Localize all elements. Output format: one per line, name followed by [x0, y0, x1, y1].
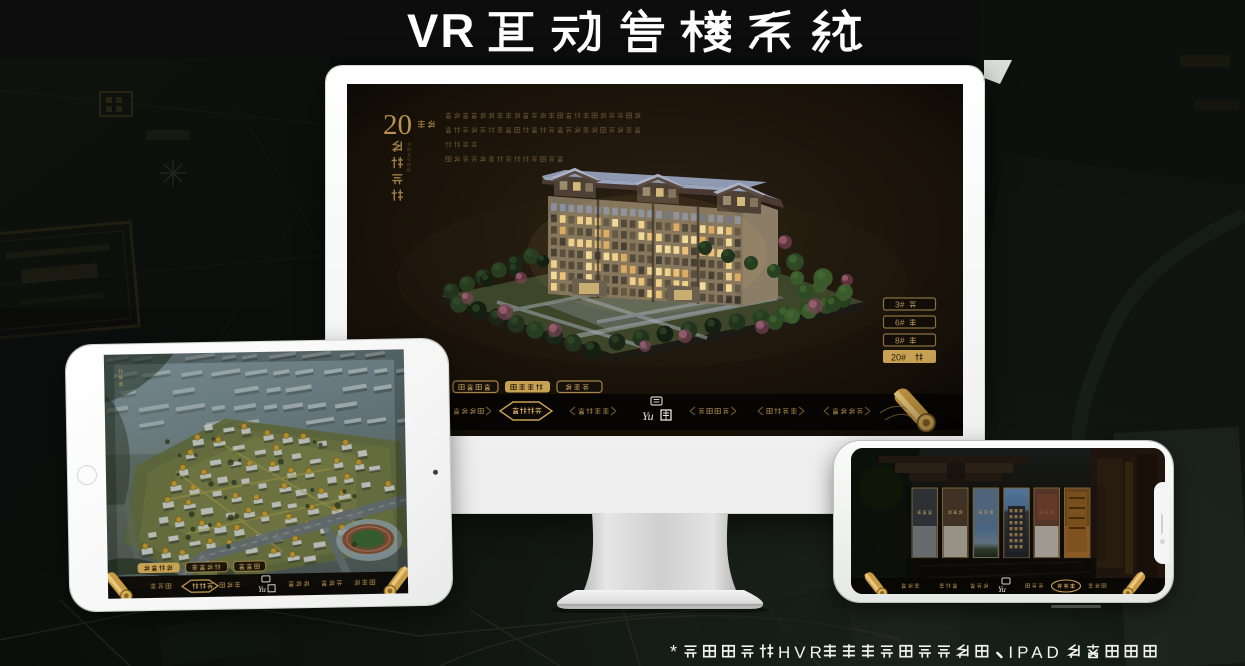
svg-text:IPAD: IPAD [1008, 643, 1062, 662]
svg-text:HVR: HVR [778, 643, 826, 662]
svg-text:Yu: Yu [258, 585, 266, 594]
svg-text:VR: VR [407, 5, 476, 57]
svg-text:*: * [670, 642, 677, 662]
svg-text:Yu: Yu [998, 585, 1006, 594]
